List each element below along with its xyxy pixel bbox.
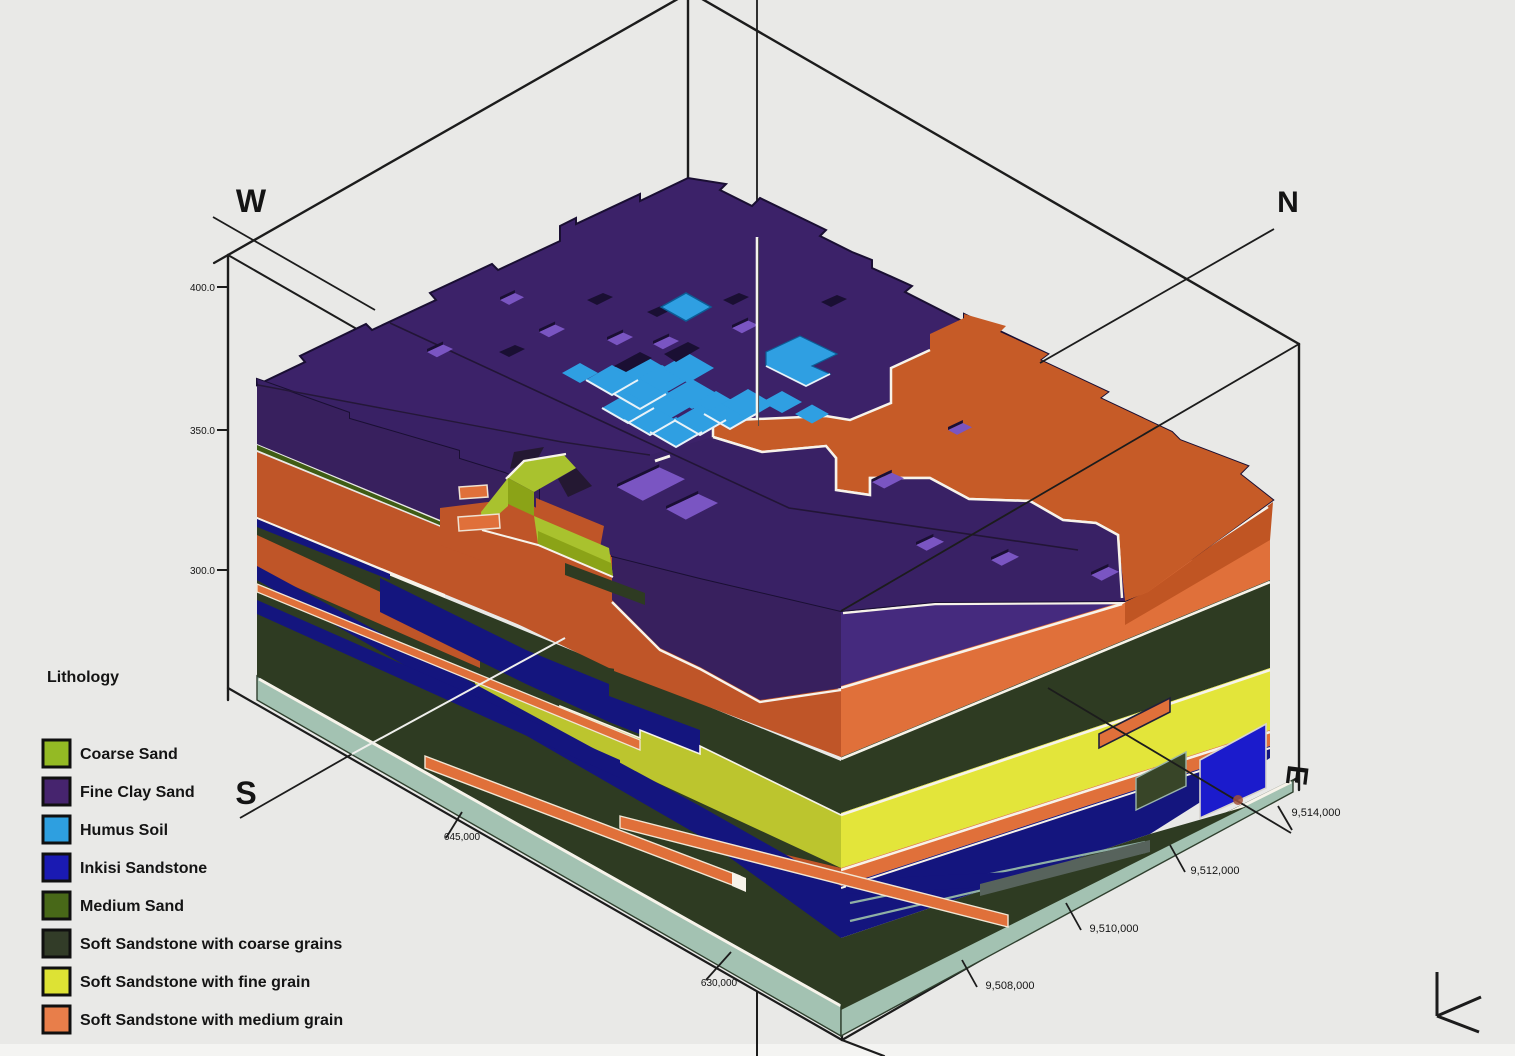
svg-text:630,000: 630,000	[701, 978, 738, 989]
svg-text:Soft Sandstone with coarse gra: Soft Sandstone with coarse grains	[80, 936, 342, 953]
svg-text:645,000: 645,000	[444, 832, 481, 843]
svg-text:E: E	[1279, 763, 1314, 787]
svg-text:W: W	[236, 183, 267, 219]
svg-text:Coarse Sand: Coarse Sand	[80, 746, 178, 763]
svg-text:9,508,000: 9,508,000	[986, 980, 1035, 992]
svg-text:9,510,000: 9,510,000	[1090, 923, 1139, 935]
svg-text:9,512,000: 9,512,000	[1191, 865, 1240, 877]
svg-text:350.0: 350.0	[190, 426, 215, 437]
svg-text:N: N	[1277, 186, 1299, 219]
svg-text:9,514,000: 9,514,000	[1292, 807, 1341, 819]
svg-text:Fine Clay Sand: Fine Clay Sand	[80, 784, 195, 801]
svg-text:S: S	[235, 775, 256, 811]
svg-text:400.0: 400.0	[190, 283, 215, 294]
svg-text:Soft Sandstone with fine grain: Soft Sandstone with fine grain	[80, 974, 310, 991]
svg-text:Soft Sandstone with medium gra: Soft Sandstone with medium grain	[80, 1012, 343, 1029]
svg-text:Humus Soil: Humus Soil	[80, 822, 168, 839]
svg-text:Lithology: Lithology	[47, 669, 119, 686]
svg-text:Inkisi Sandstone: Inkisi Sandstone	[80, 860, 207, 877]
svg-text:300.0: 300.0	[190, 566, 215, 577]
svg-text:Medium Sand: Medium Sand	[80, 898, 184, 915]
